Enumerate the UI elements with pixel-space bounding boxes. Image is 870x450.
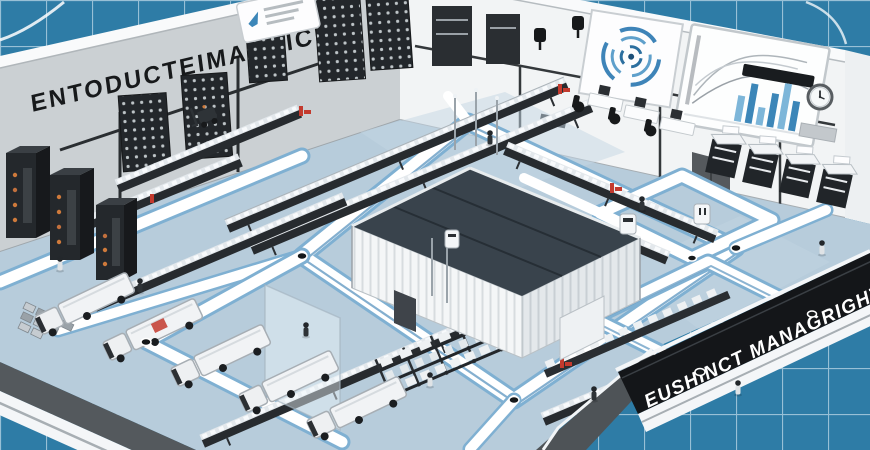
platform-right-edge (845, 50, 870, 224)
kiosk (620, 214, 636, 234)
wall-clock-icon (808, 85, 832, 109)
machine-tower (96, 198, 137, 280)
kiosk (694, 204, 710, 224)
swirl-poster-icon (579, 10, 683, 107)
machine-tower (50, 168, 94, 260)
kiosk (445, 230, 459, 248)
machine-tower (6, 146, 50, 238)
isometric-scene: ENTODUCTEIMAURICE (0, 0, 870, 450)
factory-illustration: ENTODUCTEIMAURICE (0, 0, 870, 450)
